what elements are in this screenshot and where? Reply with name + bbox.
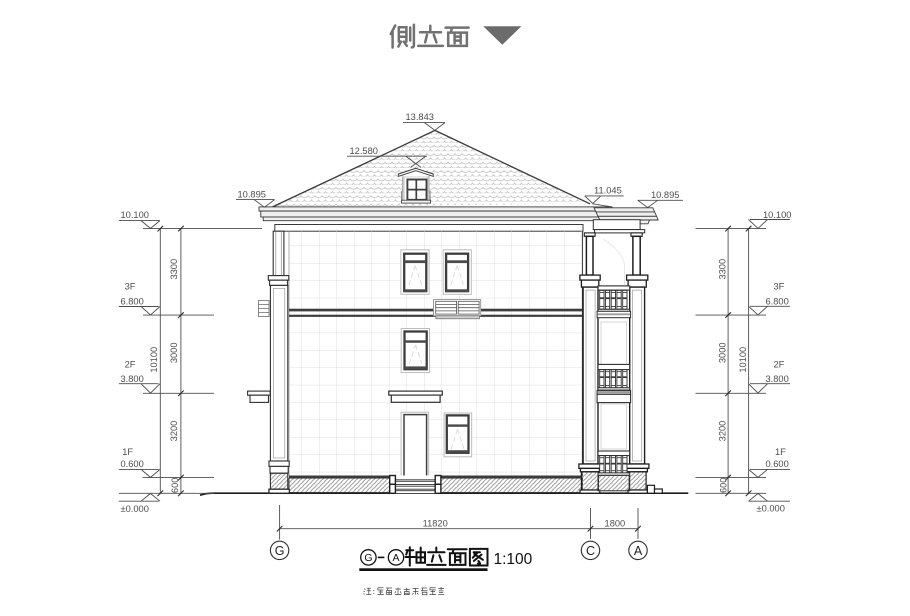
svg-text:0.600: 0.600: [121, 459, 144, 469]
svg-text:2F: 2F: [774, 360, 785, 370]
svg-text:1:100: 1:100: [494, 551, 533, 568]
svg-text:0.600: 0.600: [766, 459, 789, 469]
svg-text:12.580: 12.580: [350, 146, 378, 156]
svg-text:10.100: 10.100: [121, 210, 149, 220]
svg-text:1F: 1F: [122, 447, 133, 457]
svg-text:10.895: 10.895: [651, 190, 679, 200]
svg-text:3200: 3200: [718, 421, 728, 442]
svg-text:10.895: 10.895: [238, 189, 266, 199]
svg-text:10.100: 10.100: [763, 210, 791, 220]
svg-text:3000: 3000: [718, 342, 728, 363]
svg-text:3.800: 3.800: [766, 374, 789, 384]
svg-text:10100: 10100: [149, 347, 159, 373]
svg-text:3000: 3000: [169, 342, 179, 363]
svg-text:11820: 11820: [423, 519, 448, 529]
svg-text:A: A: [392, 552, 399, 564]
svg-text:1800: 1800: [605, 519, 626, 529]
svg-text:600: 600: [170, 478, 180, 494]
svg-text:6.800: 6.800: [766, 297, 789, 307]
svg-text:G: G: [275, 544, 285, 558]
svg-text:6.800: 6.800: [121, 297, 144, 307]
svg-text:11.045: 11.045: [594, 186, 622, 196]
svg-text:3.800: 3.800: [121, 374, 144, 384]
svg-text:±0.000: ±0.000: [757, 504, 785, 514]
svg-text:600: 600: [718, 478, 728, 494]
svg-text:3300: 3300: [169, 259, 179, 280]
svg-text:13.843: 13.843: [406, 112, 434, 122]
svg-text:1F: 1F: [775, 447, 786, 457]
svg-text:3F: 3F: [125, 281, 136, 291]
svg-text:3300: 3300: [718, 259, 728, 280]
svg-text:2F: 2F: [125, 360, 136, 370]
svg-text:3200: 3200: [169, 421, 179, 442]
svg-text:G: G: [364, 552, 372, 564]
svg-text:10100: 10100: [738, 347, 748, 373]
svg-text:3F: 3F: [774, 281, 785, 291]
svg-text:±0.000: ±0.000: [121, 504, 149, 514]
svg-text:C: C: [586, 544, 595, 558]
svg-text:A: A: [634, 544, 643, 558]
